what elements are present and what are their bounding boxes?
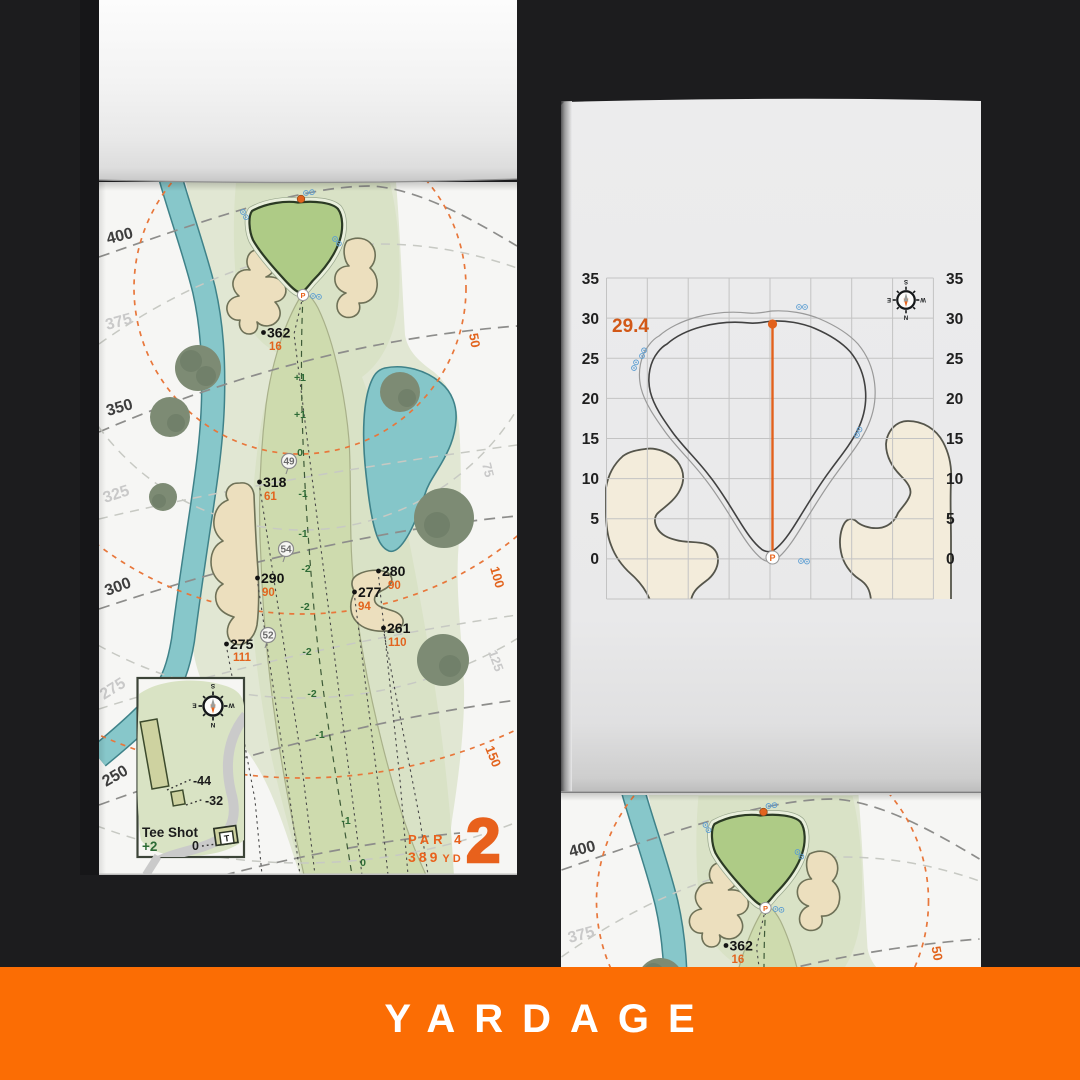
svg-text:5: 5	[946, 511, 955, 528]
svg-text:35: 35	[946, 271, 964, 288]
svg-text:30: 30	[946, 311, 963, 328]
svg-text:20: 20	[946, 391, 963, 408]
svg-text:15: 15	[582, 431, 600, 448]
svg-text:0: 0	[946, 551, 955, 568]
svg-text:5: 5	[590, 511, 599, 528]
svg-text:35: 35	[582, 271, 600, 288]
svg-text:10: 10	[946, 471, 963, 488]
svg-text:20: 20	[582, 391, 599, 408]
svg-text:P: P	[769, 553, 775, 563]
svg-text:10: 10	[582, 471, 599, 488]
svg-text:30: 30	[582, 311, 599, 328]
svg-text:0: 0	[590, 551, 599, 568]
svg-text:29.4: 29.4	[612, 316, 649, 337]
svg-text:YARDAGE: YARDAGE	[384, 997, 713, 1041]
svg-text:25: 25	[582, 351, 600, 368]
svg-text:25: 25	[946, 351, 964, 368]
svg-text:15: 15	[946, 431, 964, 448]
